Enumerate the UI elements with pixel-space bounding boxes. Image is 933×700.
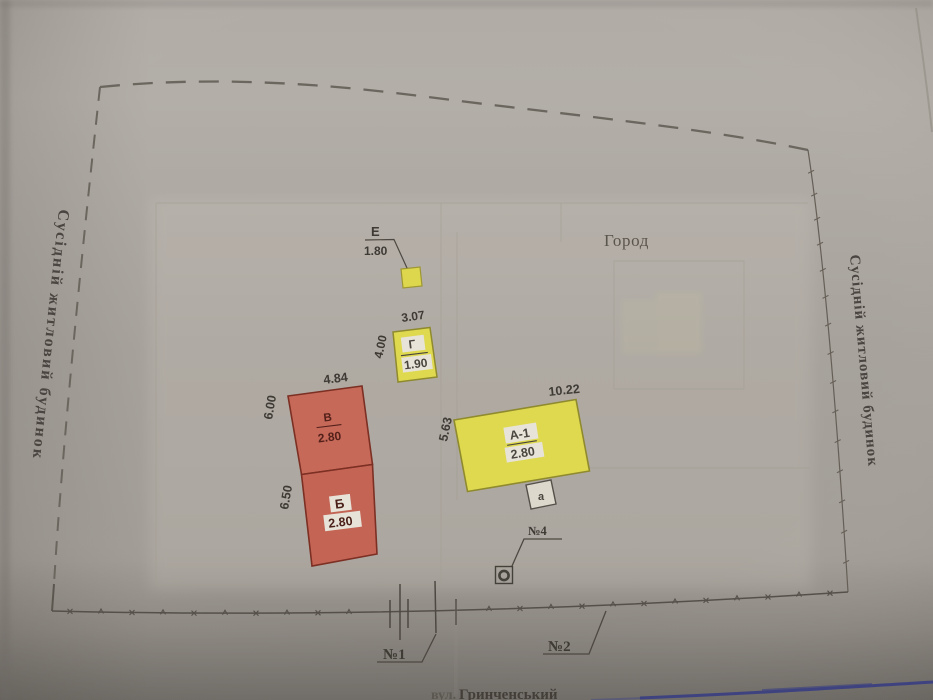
svg-text:2.80: 2.80: [327, 514, 353, 531]
svg-text:а: а: [538, 491, 545, 503]
svg-text:№1: №1: [383, 647, 406, 663]
svg-text:В: В: [323, 412, 333, 425]
svg-text:Б: Б: [334, 496, 345, 512]
svg-text:Гринченський: Гринченський: [459, 687, 558, 700]
svg-text:№2: №2: [548, 639, 571, 655]
svg-text:№4: №4: [528, 524, 548, 538]
svg-text:2.80: 2.80: [317, 429, 342, 446]
svg-text:1.80: 1.80: [364, 244, 388, 258]
svg-text:1.90: 1.90: [403, 356, 428, 373]
svg-text:вул.: вул.: [431, 688, 456, 700]
svg-text:Е: Е: [371, 224, 380, 239]
svg-text:4.84: 4.84: [323, 370, 349, 387]
svg-text:Город: Город: [604, 231, 649, 250]
